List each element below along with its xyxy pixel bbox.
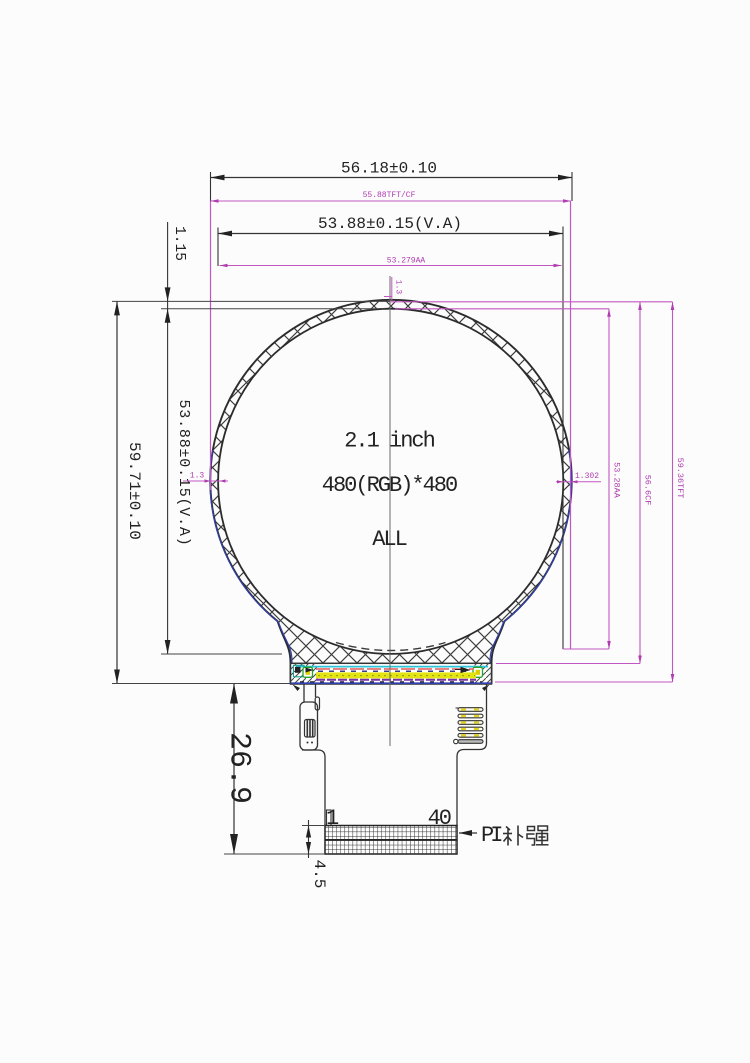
svg-text:53.28AA: 53.28AA xyxy=(612,462,622,499)
svg-text:26.9: 26.9 xyxy=(222,732,256,804)
svg-text:53.279AA: 53.279AA xyxy=(387,257,426,266)
svg-text:ALL: ALL xyxy=(372,527,406,552)
svg-text:4.5: 4.5 xyxy=(310,860,328,889)
svg-text:59.36TFT: 59.36TFT xyxy=(675,458,685,499)
svg-text:480(RGB)*480: 480(RGB)*480 xyxy=(322,473,457,498)
svg-text:56.18±0.10: 56.18±0.10 xyxy=(341,160,437,178)
svg-text:1.302: 1.302 xyxy=(575,472,599,481)
svg-text:1.3: 1.3 xyxy=(394,280,403,295)
svg-text:53.88±0.15(V.A): 53.88±0.15(V.A) xyxy=(318,215,462,233)
svg-text:1.3: 1.3 xyxy=(190,472,205,481)
svg-text:40: 40 xyxy=(428,806,451,831)
svg-text:59.71±0.10: 59.71±0.10 xyxy=(125,442,143,540)
svg-text:55.88TFT/CF: 55.88TFT/CF xyxy=(363,191,416,200)
svg-text:2.1 inch: 2.1 inch xyxy=(344,429,434,454)
svg-text:1.15: 1.15 xyxy=(171,226,187,261)
svg-text:1: 1 xyxy=(326,806,339,831)
svg-text:PI: PI xyxy=(481,823,502,848)
svg-text:56.6CF: 56.6CF xyxy=(643,475,653,506)
